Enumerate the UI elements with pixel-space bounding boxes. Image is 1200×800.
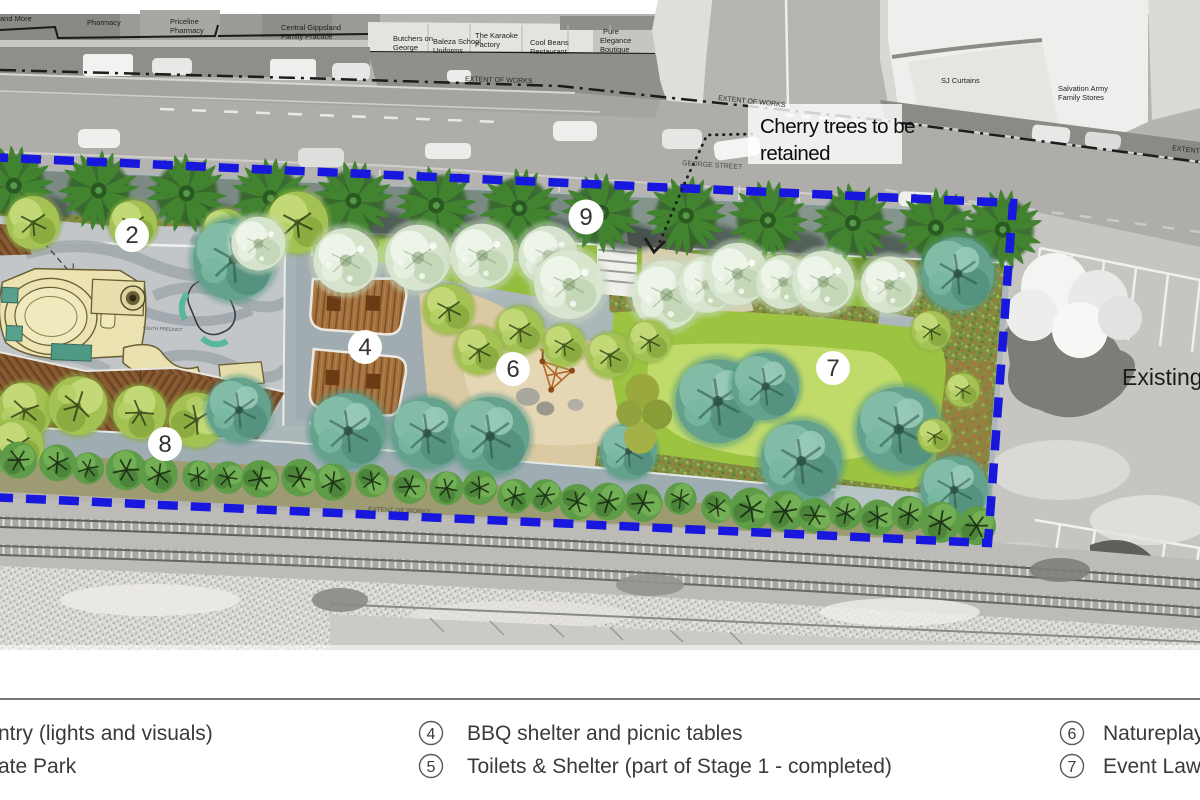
svg-text:7: 7: [1068, 759, 1077, 776]
svg-text:Salvation Army: Salvation Army: [1058, 84, 1108, 93]
svg-text:Elegance: Elegance: [600, 36, 631, 45]
svg-text:2: 2: [125, 222, 138, 249]
svg-text:Pure: Pure: [603, 27, 619, 36]
svg-text:Factory: Factory: [475, 40, 500, 49]
svg-text:Cool Beans: Cool Beans: [530, 38, 569, 47]
svg-text:Uniforms: Uniforms: [433, 46, 463, 55]
svg-text:Butchers on: Butchers on: [393, 34, 433, 43]
svg-text:6: 6: [506, 356, 519, 383]
svg-text:Family Practice: Family Practice: [281, 32, 332, 41]
svg-text:George: George: [393, 43, 418, 52]
svg-text:The Karaoke: The Karaoke: [475, 31, 518, 40]
svg-text:Event Lawn: Event Lawn: [1103, 755, 1200, 778]
svg-text:Pharmacy: Pharmacy: [87, 18, 121, 27]
svg-text:7: 7: [826, 355, 839, 382]
svg-text:SJ Curtains: SJ Curtains: [941, 76, 980, 85]
svg-text:Family Stores: Family Stores: [1058, 93, 1104, 102]
svg-text:Existing Car park: Existing Car park: [1122, 364, 1200, 390]
svg-text:Natureplay: Natureplay: [1103, 722, 1200, 745]
svg-text:and More: and More: [0, 14, 32, 23]
svg-text:9: 9: [579, 204, 592, 231]
svg-text:BBQ shelter and picnic tables: BBQ shelter and picnic tables: [467, 722, 742, 745]
svg-text:Pharmacy: Pharmacy: [170, 26, 204, 35]
svg-text:ate Park: ate Park: [0, 755, 77, 778]
svg-text:6: 6: [1068, 726, 1077, 743]
svg-text:8: 8: [158, 431, 171, 458]
svg-text:5: 5: [427, 759, 436, 776]
svg-text:Priceline: Priceline: [170, 17, 199, 26]
svg-text:Boutique: Boutique: [600, 45, 630, 54]
svg-text:Cherry trees to be: Cherry trees to be: [760, 115, 915, 138]
svg-text:Central Gippsland: Central Gippsland: [281, 23, 341, 32]
svg-text:ntry (lights and visuals): ntry (lights and visuals): [0, 722, 213, 745]
svg-text:Toilets & Shelter (part of Sta: Toilets & Shelter (part of Stage 1 - com…: [467, 755, 892, 778]
svg-text:Restaurant: Restaurant: [530, 47, 568, 56]
svg-text:4: 4: [358, 334, 371, 361]
svg-text:retained: retained: [760, 142, 830, 165]
svg-text:4: 4: [427, 726, 436, 743]
